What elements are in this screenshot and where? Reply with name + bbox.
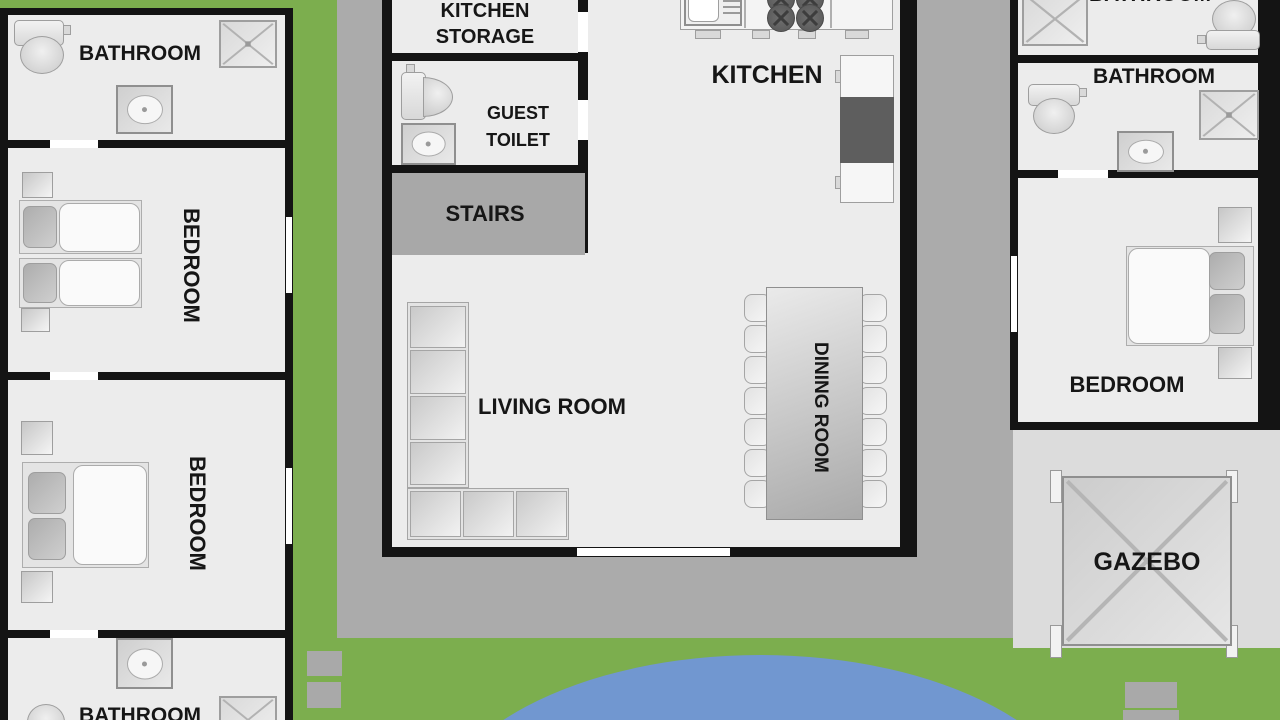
door-opening <box>578 12 588 52</box>
room-label-bathroom-right: BATHROOM <box>1084 66 1224 87</box>
pillow <box>28 472 66 514</box>
dining-chair <box>859 480 887 508</box>
bed-duvet <box>59 203 140 252</box>
door-opening <box>50 372 98 380</box>
sink-icon <box>116 85 173 134</box>
sofa-cushion <box>410 306 466 348</box>
patio-left-strip <box>337 0 382 638</box>
window <box>285 216 293 294</box>
dining-chair <box>859 356 887 384</box>
fridge-handle <box>835 70 841 83</box>
sofa-cushion <box>516 491 567 537</box>
pillow <box>1209 294 1245 334</box>
toilet-bowl-icon <box>1033 98 1075 134</box>
dining-chair <box>859 294 887 322</box>
stepping-stone <box>1125 682 1177 708</box>
shower-icon <box>1022 0 1088 46</box>
guest-toilet-line1: GUEST <box>468 104 568 122</box>
kitchen-sink-basin <box>688 0 719 22</box>
toilet-flush-icon <box>63 25 71 35</box>
stove-burner-icon <box>767 4 795 32</box>
guest-toilet-line2: TOILET <box>468 131 568 149</box>
door-opening <box>50 630 98 638</box>
shower-icon <box>219 696 277 720</box>
pillow <box>23 263 57 303</box>
room-label-kitchen-storage: KITCHEN STORAGE <box>410 1 560 47</box>
nightstand <box>22 172 53 198</box>
room-label-gazebo: GAZEBO <box>1075 550 1219 575</box>
door-opening <box>1058 170 1108 178</box>
bed-duvet <box>1128 248 1210 344</box>
stepping-stone <box>307 651 342 676</box>
patio-back-terrace <box>382 557 917 638</box>
toilet-icon <box>1206 30 1260 50</box>
nightstand <box>1218 347 1252 379</box>
room-label-dining-room: DINING ROOM <box>800 332 830 482</box>
stepping-stone <box>1123 710 1179 720</box>
sink-icon <box>1117 131 1174 172</box>
pillow <box>1209 252 1245 290</box>
kitchen-storage-line2: STORAGE <box>410 27 560 47</box>
drainboard-icon <box>723 0 740 18</box>
sofa-cushion <box>410 350 466 394</box>
interior-wall <box>392 53 578 61</box>
kitchen-storage-line1: KITCHEN <box>410 1 560 21</box>
fridge-handle <box>835 176 841 189</box>
nightstand <box>21 571 53 603</box>
sofa-cushion <box>410 442 466 485</box>
pillow <box>23 206 57 248</box>
toilet-flush-icon <box>1079 88 1087 97</box>
room-label-bedroom-left-lower: BEDROOM <box>174 448 208 578</box>
fridge-dark-panel <box>840 97 894 163</box>
door-opening <box>578 100 588 140</box>
sofa-cushion <box>410 491 461 537</box>
counter-divider <box>744 0 746 28</box>
dining-chair <box>859 387 887 415</box>
window <box>285 467 293 545</box>
room-label-guest-toilet: GUEST TOILET <box>468 104 568 149</box>
pillow <box>28 518 66 560</box>
sliding-door <box>576 547 731 557</box>
gazebo-post <box>1050 470 1062 503</box>
door-opening <box>50 140 98 148</box>
stove-burner-icon <box>796 4 824 32</box>
sofa-cushion <box>410 396 466 440</box>
dining-chair <box>859 449 887 477</box>
counter-foot <box>752 30 770 39</box>
toilet-flush-icon <box>1197 35 1206 44</box>
sink-icon <box>116 638 173 689</box>
counter-foot <box>845 30 869 39</box>
sink-icon <box>401 123 456 165</box>
room-label-stairs: STAIRS <box>420 203 550 225</box>
sofa-cushion <box>463 491 514 537</box>
room-label-bedroom-left-upper: BEDROOM <box>168 198 202 332</box>
shower-icon <box>219 20 277 68</box>
nightstand <box>21 308 50 332</box>
room-label-bathroom-top-left: BATHROOM <box>70 43 210 64</box>
nightstand <box>21 421 53 455</box>
toilet-bowl-icon <box>20 36 64 74</box>
patio-right-strip <box>917 0 1013 638</box>
interior-wall <box>392 165 578 173</box>
nightstand <box>1218 207 1252 243</box>
shower-icon <box>1199 90 1259 140</box>
stepping-stone <box>307 682 341 708</box>
counter-foot <box>695 30 721 39</box>
room-label-bathroom-top-right: BATHROOM <box>1080 0 1220 5</box>
bed-duvet <box>73 465 147 565</box>
dining-chair <box>859 418 887 446</box>
floor-plan: BATHROOM BEDROOM BEDROOM BATHROOM KITCHE… <box>0 0 1280 720</box>
room-label-bathroom-bottom-left: BATHROOM <box>70 705 210 720</box>
window <box>1010 255 1018 333</box>
room-label-kitchen: KITCHEN <box>705 63 829 88</box>
dining-chair <box>859 325 887 353</box>
counter-divider <box>830 0 832 28</box>
gazebo-post <box>1050 625 1062 658</box>
bed-duvet <box>59 260 140 306</box>
room-label-bedroom-right: BEDROOM <box>1062 374 1192 396</box>
room-label-living-room: LIVING ROOM <box>468 396 636 418</box>
